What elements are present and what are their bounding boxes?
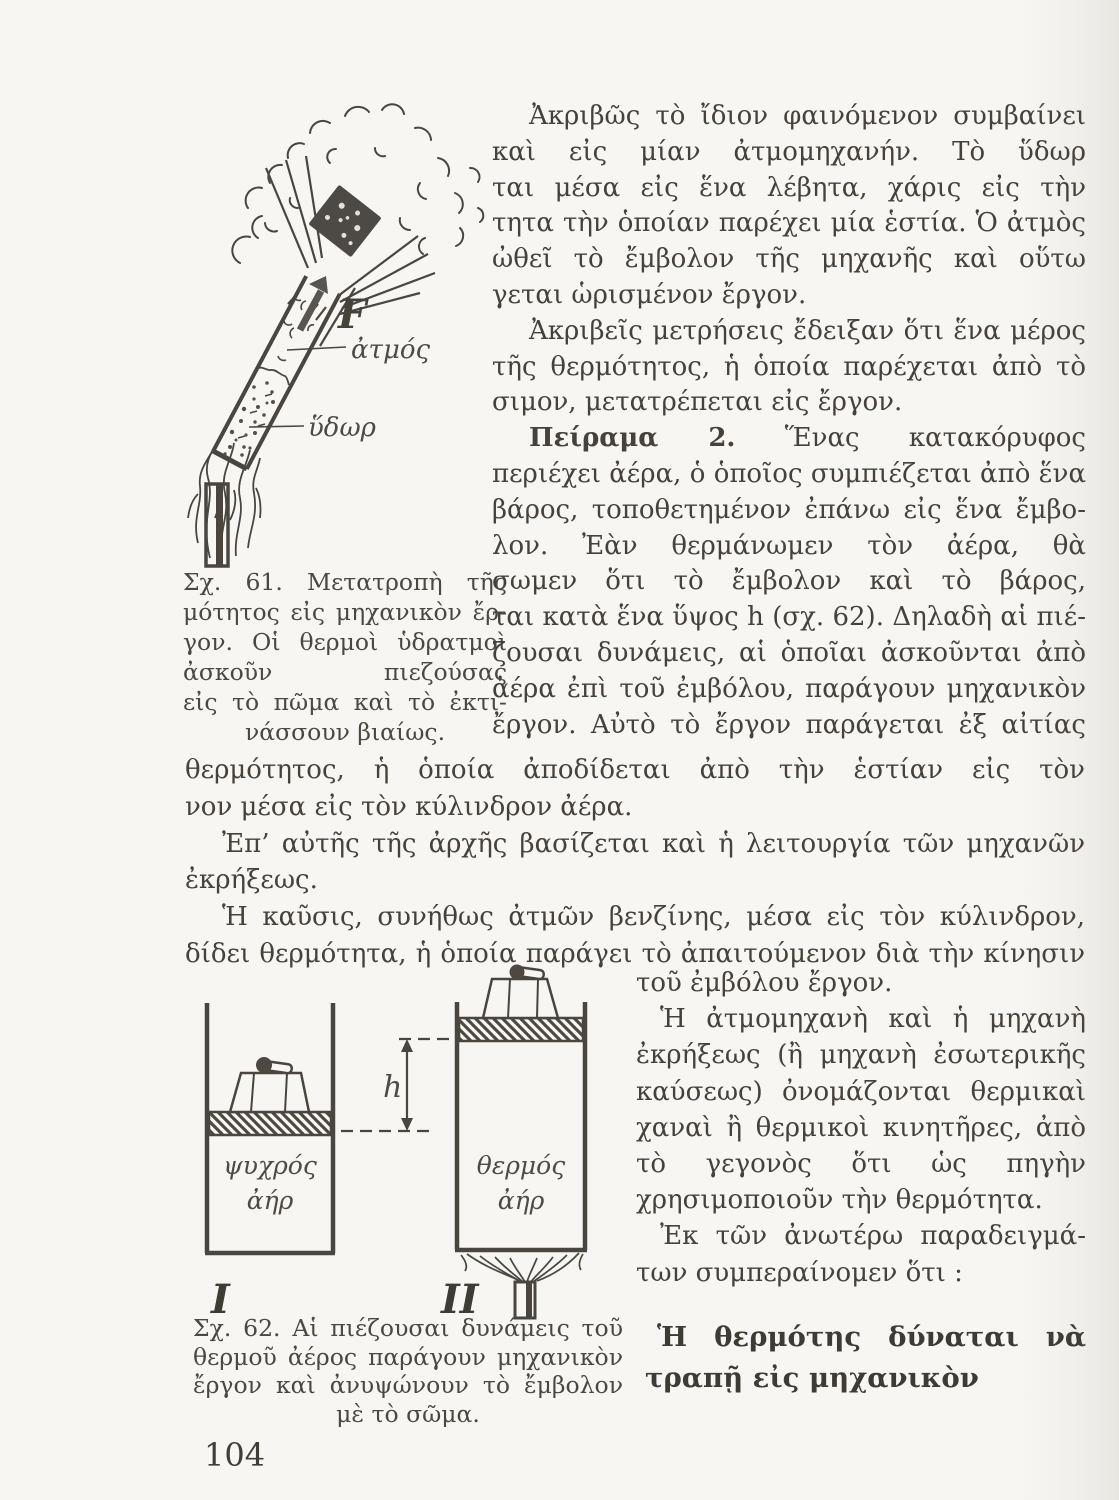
hot-air-label-line2: ἀήρ [498,1186,545,1215]
text-line: ται κατὰ ἕνα ὕψος h (σχ. 62). Δηλαδὴ αἱ … [492,600,1086,636]
text-line: σωμεν ὅτι τὸ ἔμβολον καὶ τὸ βάρος, ὑψώνο… [492,564,1086,600]
steam-pointer-line [287,347,346,350]
text-line: χαναὶ ἢ θερμικοὶ κινητῆρες, ἀπὸ [636,1110,1086,1146]
text-line: ἀέρα ἐπὶ τοῦ ἐμβόλου, παράγουν μηχανικὸν [492,672,1086,708]
book-page: F ἀτμός ὕδωρ Σχ. 61. Μετατροπὴ τῆς θερ- … [0,0,1119,1500]
text-line: Ἀκριβεῖς μετρήσεις ἔδειξαν ὅτι ἕνα μέρος [492,314,1086,350]
water-surface [257,368,289,385]
text-line: νον μέσα εἰς τὸν κύλινδρον ἀέρα. [185,789,1085,826]
text-line: Ἀκριβῶς τὸ ἴδιον φαινόμενον συμβαίνει [492,99,1086,135]
text-line: Ἐπ’ αὐτῆς τῆς ἀρχῆς βασίζεται καὶ ἡ λειτ… [185,826,1085,863]
text-line: λον. Ἐὰν θερμάνωμεν τὸν ἀέρα, θὰ παρατηρ… [492,529,1086,565]
text-line: Ἡ ἀτμομηχανὴ καὶ ἡ μηχανὴ [636,1001,1086,1037]
text-line: ὠθεῖ τὸ ἔμβολον τῆς μηχανῆς καὶ οὕτω παρ… [492,242,1086,278]
flame [188,433,261,560]
text-line: ἐκρήξεως. [185,862,1085,899]
text-line: ζουσαι δυνάμεις, αἱ ὁποῖαι ἀσκοῦνται ἀπὸ… [492,636,1086,672]
caption-line: ἀσκοῦν πιεζούσας δυνάμεις [183,657,507,687]
text-line: περιέχει ἀέρα, ὁ ὁποῖος συμπιέζεται ἀπὸ … [492,457,1086,493]
cold-air-label-line1: ψυχρός [223,1151,317,1180]
secondary-text-column: τοῦ ἐμβόλου ἔργον. Ἡ ἀτμομηχανὴ καὶ ἡ μη… [636,965,1086,1291]
text-line: θερμότητος, ἡ ὁποία ἀποδίδεται ἀπὸ τὴν ἑ… [185,752,1085,789]
water-label: ὕδωρ [308,413,377,443]
cold-piston [209,1112,331,1135]
conclusion-statement: Ἡ θερμότης δύναται νὰ μετα- τραπῇ εἰς μη… [645,1317,1086,1399]
text-line: ἔργον. Αὐτὸ τὸ ἔργον παράγεται ἐξ αἰτίας… [492,708,1086,744]
figure-62-illustration: ψυχρός ἀήρ h θερμός ἀή [185,962,625,1332]
hot-flame [461,1253,583,1283]
text-line: Ἡ καῦσις, συνήθως ἀτμῶν βενζίνης, μέσα ε… [185,899,1085,936]
water-pointer-line [249,426,304,427]
hot-cylinder: θερμός ἀήρ [455,965,587,1319]
caption-line: εἰς τὸ πῶμα καὶ τὸ ἐκτι- [183,687,507,717]
caption-line: θερμοῦ ἀέρος παράγουν μηχανικὸν [193,1343,623,1372]
hot-burner [515,1282,535,1318]
caption-line: Σχ. 61. Μετατροπὴ τῆς θερ- [183,567,507,597]
cold-cylinder: ψυχρός ἀήρ [205,1003,335,1253]
figure-62-caption: Σχ. 62. Αἱ πιέζουσαι δυνάμεις τοῦ θερμοῦ… [193,1314,623,1429]
caption-line: νάσσουν βιαίως. [183,717,507,747]
text-line: ἐκρήξεως (ἢ μηχανὴ ἐσωτερικῆς [636,1037,1086,1073]
force-label: F [337,291,369,338]
cold-weight [230,1057,309,1112]
conclusion-line: Ἡ θερμότης δύναται νὰ μετα- [645,1317,1086,1358]
text-line: ται μέσα εἰς ἕνα λέβητα, χάρις εἰς τὴν θ… [492,171,1086,207]
hot-weight [483,965,558,1019]
hot-air-label-line1: θερμός [477,1151,565,1180]
text-line: Πείραμα 2. Ἕνας κατακόρυφος κύλινδρος [492,421,1086,457]
hot-piston [459,1018,583,1041]
conclusion-line: τραπῇ εἰς μηχανικὸν ἔργον. [645,1358,1086,1399]
figure-61-illustration: F ἀτμός ὕδωρ [170,88,515,578]
main-text-column: Ἀκριβῶς τὸ ἴδιον φαινόμενον συμβαίνει κα… [492,99,1086,743]
text-line: βάρος, τοποθετημένον ἐπάνω εἰς ἕνα ἔμβο- [492,493,1086,529]
text-line: Ἐκ τῶν ἀνωτέρω παραδειγμά- [636,1218,1086,1254]
page-number: 104 [204,1436,265,1474]
caption-line: Σχ. 62. Αἱ πιέζουσαι δυνάμεις τοῦ [193,1314,623,1343]
height-label: h [383,1070,402,1105]
caption-line: μότητος εἰς μηχανικὸν ἔρ- [183,597,507,627]
experiment-2-heading: Πείραμα 2. [529,423,735,453]
text-line: καύσεως) ὀνομάζονται θερμικαὶ μη- [636,1074,1086,1110]
height-dimension: h [341,1039,455,1131]
caption-line: μὲ τὸ σῶμα. [193,1400,623,1429]
text-line: χρησιμοποιοῦν τὴν θερμότητα. [636,1182,1086,1218]
text-line: των συμπεραίνομεν ὅτι : [636,1255,1086,1291]
caption-line: ἔργον καὶ ἀνυψώνουν τὸ ἔμβολον [193,1371,623,1400]
text-line: σιμον, μετατρέπεται εἰς ἔργον. [492,385,1086,421]
text-line: γεται ὡρισμένον ἔργον. [492,278,1086,314]
text-line: τητα τὴν ὁποίαν παρέχει μία ἑστία. Ὁ ἀτμ… [492,206,1086,242]
text-line: τοῦ ἐμβόλου ἔργον. [636,965,1086,1001]
caption-line: γον. Οἱ θερμοὶ ὑδρατμοὶ [183,627,507,657]
text-line: τὸ γεγονὸς ὅτι ὡς πηγὴν ἐνεργείας [636,1146,1086,1182]
text-line: τῆς θερμότητος, ἡ ὁποία παρέχεται ἀπὸ τὸ… [492,350,1086,386]
figure-61-caption: Σχ. 61. Μετατροπὴ τῆς θερ- μότητος εἰς μ… [183,567,507,748]
text-line: καὶ εἰς μίαν ἀτμομηχανήν. Τὸ ὕδωρ ἀτμοπο… [492,135,1086,171]
cold-air-label-line2: ἀήρ [247,1186,294,1215]
steam-label: ἀτμός [351,335,430,365]
full-width-text: θερμότητος, ἡ ὁποία ἀποδίδεται ἀπὸ τὴν ἑ… [185,752,1085,973]
